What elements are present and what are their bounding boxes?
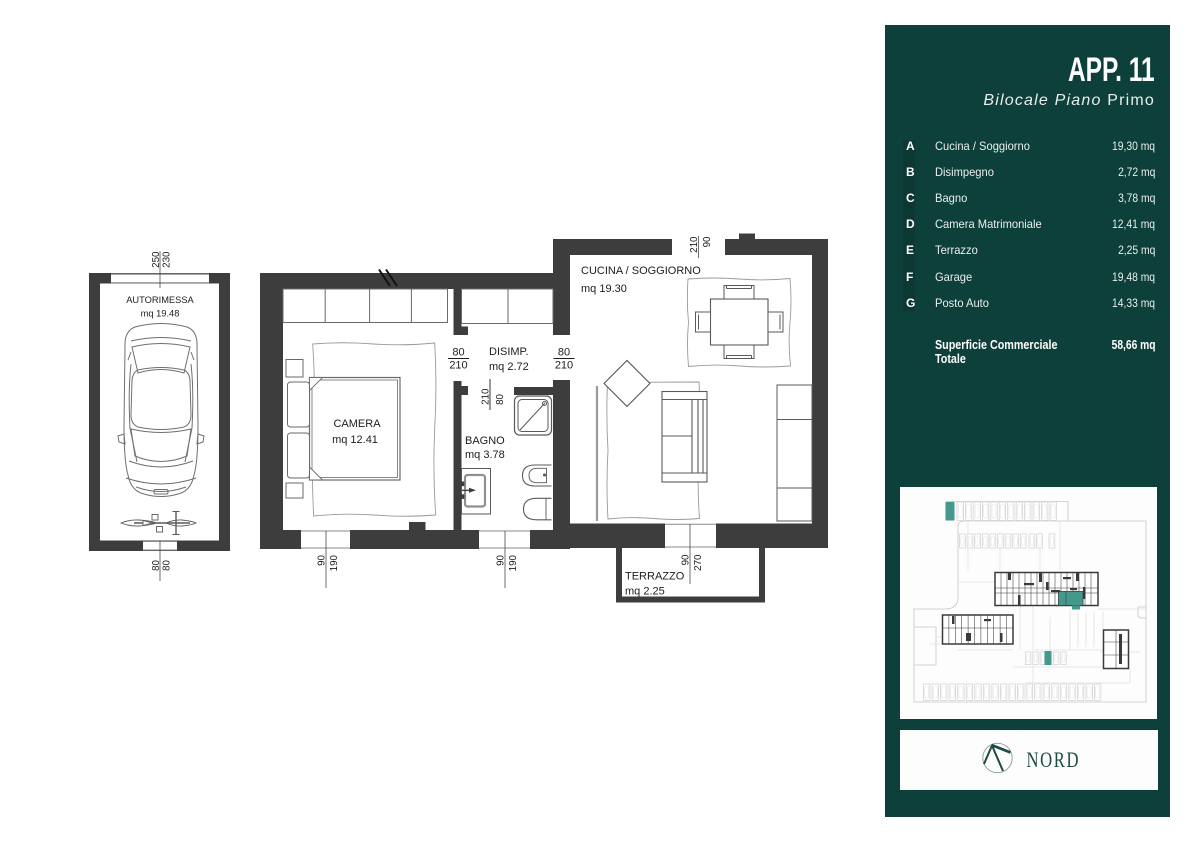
svg-text:80: 80 (495, 393, 506, 404)
svg-text:210: 210 (689, 236, 700, 253)
svg-text:90: 90 (680, 554, 691, 565)
svg-text:80: 80 (452, 347, 464, 359)
svg-text:90: 90 (316, 554, 327, 565)
svg-text:80: 80 (162, 559, 173, 570)
svg-text:mq 2.25: mq 2.25 (625, 586, 665, 598)
svg-text:TERRAZZO: TERRAZZO (625, 571, 685, 583)
svg-text:NORD: NORD (1027, 748, 1081, 773)
svg-text:90: 90 (495, 554, 506, 565)
svg-text:190: 190 (329, 554, 340, 571)
svg-text:BAGNO: BAGNO (465, 435, 505, 447)
svg-text:CUCINA / SOGGIORNO: CUCINA / SOGGIORNO (581, 265, 701, 277)
svg-text:mq 19.30: mq 19.30 (581, 283, 627, 295)
svg-text:mq 3.78: mq 3.78 (465, 449, 505, 461)
svg-text:210: 210 (555, 360, 573, 372)
svg-text:mq 2.72: mq 2.72 (489, 361, 529, 373)
svg-text:DISIMP.: DISIMP. (489, 346, 529, 358)
svg-text:230: 230 (162, 251, 173, 268)
svg-text:mq 19.48: mq 19.48 (141, 309, 180, 319)
svg-text:80: 80 (151, 559, 162, 570)
svg-text:90: 90 (702, 236, 713, 247)
svg-text:mq 12.41: mq 12.41 (332, 434, 378, 446)
svg-text:AUTORIMESSA: AUTORIMESSA (126, 295, 194, 305)
svg-text:270: 270 (693, 554, 704, 571)
svg-text:210: 210 (449, 360, 467, 372)
svg-text:CAMERA: CAMERA (333, 418, 381, 430)
svg-text:210: 210 (481, 388, 492, 405)
svg-text:190: 190 (508, 554, 519, 571)
svg-text:80: 80 (558, 347, 570, 359)
svg-text:250: 250 (151, 251, 162, 268)
